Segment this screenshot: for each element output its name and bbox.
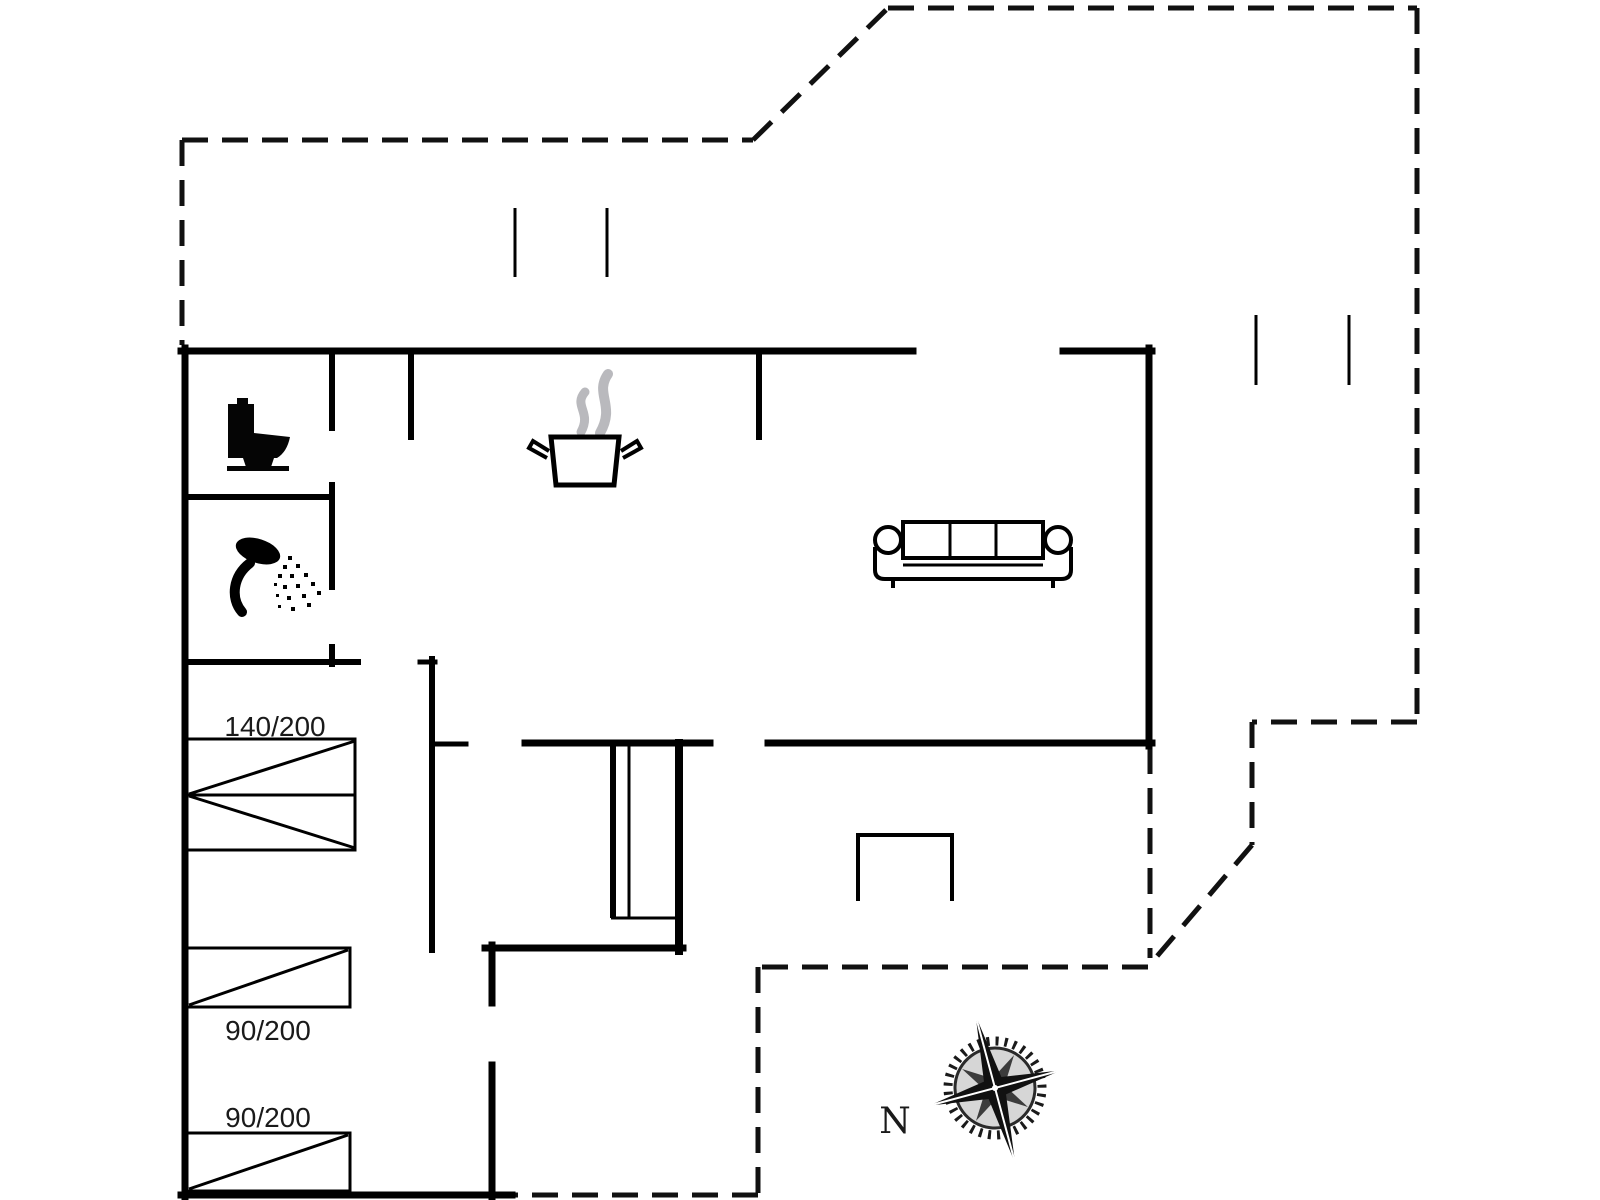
cooking-pot-icon	[529, 437, 641, 485]
bed-single-2-label: 90/200	[225, 1102, 311, 1133]
stairs-icon	[611, 745, 678, 918]
steam-icon	[581, 374, 608, 433]
shower-spray-dots	[274, 556, 321, 611]
floor-plan-canvas: 140/200 90/200 90/200	[0, 0, 1600, 1200]
compass-north-label: N	[879, 1101, 911, 1142]
bed-single-1-label: 90/200	[225, 1015, 311, 1046]
bed-single-1	[187, 948, 350, 1007]
bed-single-2	[187, 1133, 350, 1191]
compass-rose-icon	[910, 998, 1081, 1181]
interior-walls	[185, 351, 759, 1198]
bed-double	[187, 739, 355, 850]
bed-double-label: 140/200	[224, 711, 325, 742]
fireplace-icon	[858, 835, 952, 901]
floor-plan-page: 140/200 90/200 90/200	[0, 0, 1600, 1200]
sofa-icon	[875, 522, 1071, 588]
terrace-dashed-outline	[182, 8, 1417, 1195]
toilet-icon	[227, 398, 290, 471]
window-tick-marks	[515, 208, 1349, 385]
shower-icon	[232, 532, 321, 612]
